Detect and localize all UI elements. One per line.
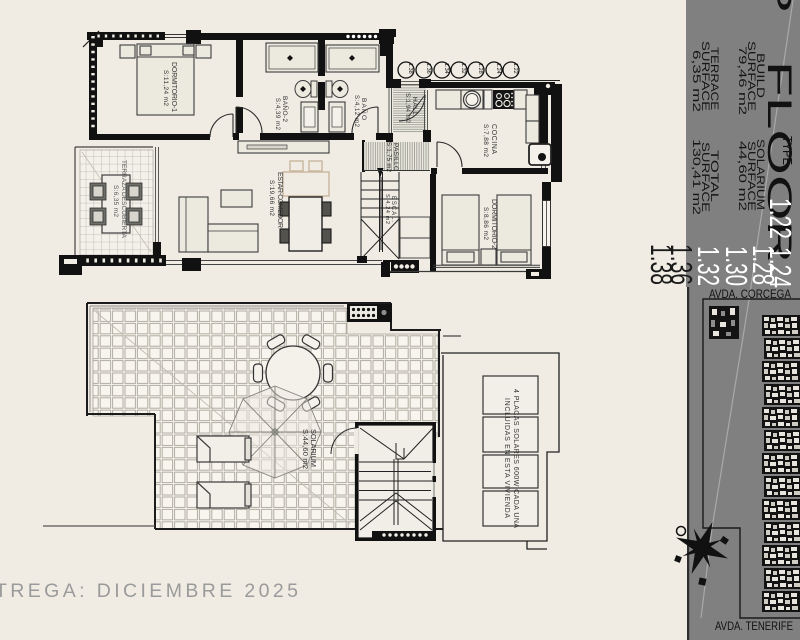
svg-text:BAÑO-2: BAÑO-2 xyxy=(281,96,290,122)
svg-text:TOP: TOP xyxy=(760,0,798,13)
svg-text:1.28: 1.28 xyxy=(477,63,483,74)
svg-text:TYPE: TYPE xyxy=(780,136,795,165)
svg-text:INCLUIDAS EN ESTA VIVIENDA: INCLUIDAS EN ESTA VIVIENDA xyxy=(503,398,510,518)
svg-text:COCINA: COCINA xyxy=(490,124,497,154)
svg-text:1.22: 1.22 xyxy=(763,198,798,239)
svg-text:PASILLO: PASILLO xyxy=(392,143,399,171)
svg-text:TERRAZA DESCUBIERTA: TERRAZA DESCUBIERTA xyxy=(120,160,127,239)
svg-text:1.36: 1.36 xyxy=(425,63,431,74)
svg-text:1.32: 1.32 xyxy=(460,63,466,74)
svg-text:AVDA. TENERIFE: AVDA. TENERIFE xyxy=(715,621,793,633)
svg-text:DORMITORIO-1: DORMITORIO-1 xyxy=(170,62,177,112)
svg-text:1.38: 1.38 xyxy=(644,244,679,285)
svg-text:1.34: 1.34 xyxy=(443,63,449,74)
svg-text:1.38: 1.38 xyxy=(407,63,413,74)
svg-text:DORMITORIO-2: DORMITORIO-2 xyxy=(490,199,497,249)
svg-text:6,35 m2: 6,35 m2 xyxy=(690,50,702,112)
svg-text:4 PLACAS SOLARES 600W CADA UNA: 4 PLACAS SOLARES 600W CADA UNA xyxy=(512,389,519,528)
svg-text:S:4,24 m2: S:4,24 m2 xyxy=(384,194,390,224)
svg-text:44,60 m2: 44,60 m2 xyxy=(736,141,748,211)
svg-text:S:44,60 m2: S:44,60 m2 xyxy=(301,429,310,469)
svg-text:ESTAR-COMEDOR: ESTAR-COMEDOR xyxy=(276,172,283,228)
svg-text:TREGA: DICIEMBRE 2025: TREGA: DICIEMBRE 2025 xyxy=(0,580,301,602)
svg-text:S:8,86 m2: S:8,86 m2 xyxy=(482,207,489,240)
svg-text:S:11,24 m2: S:11,24 m2 xyxy=(162,70,169,106)
svg-text:S:1,75 m2: S:1,75 m2 xyxy=(385,142,391,173)
svg-text:S:4,39 m2: S:4,39 m2 xyxy=(274,98,280,131)
svg-text:1.24: 1.24 xyxy=(495,63,501,74)
svg-text:HALL: HALL xyxy=(411,97,418,115)
svg-text:S:7,88 m2: S:7,88 m2 xyxy=(482,124,489,157)
svg-text:S:1,94 m2: S:1,94 m2 xyxy=(404,93,410,124)
svg-text:S:6,35 m2: S:6,35 m2 xyxy=(112,185,119,217)
svg-text:79,46 m2: 79,46 m2 xyxy=(736,46,748,115)
svg-text:130,41 m2: 130,41 m2 xyxy=(690,139,702,215)
svg-text:S:19,66 m2: S:19,66 m2 xyxy=(268,180,275,216)
svg-text:1.22: 1.22 xyxy=(512,63,518,74)
